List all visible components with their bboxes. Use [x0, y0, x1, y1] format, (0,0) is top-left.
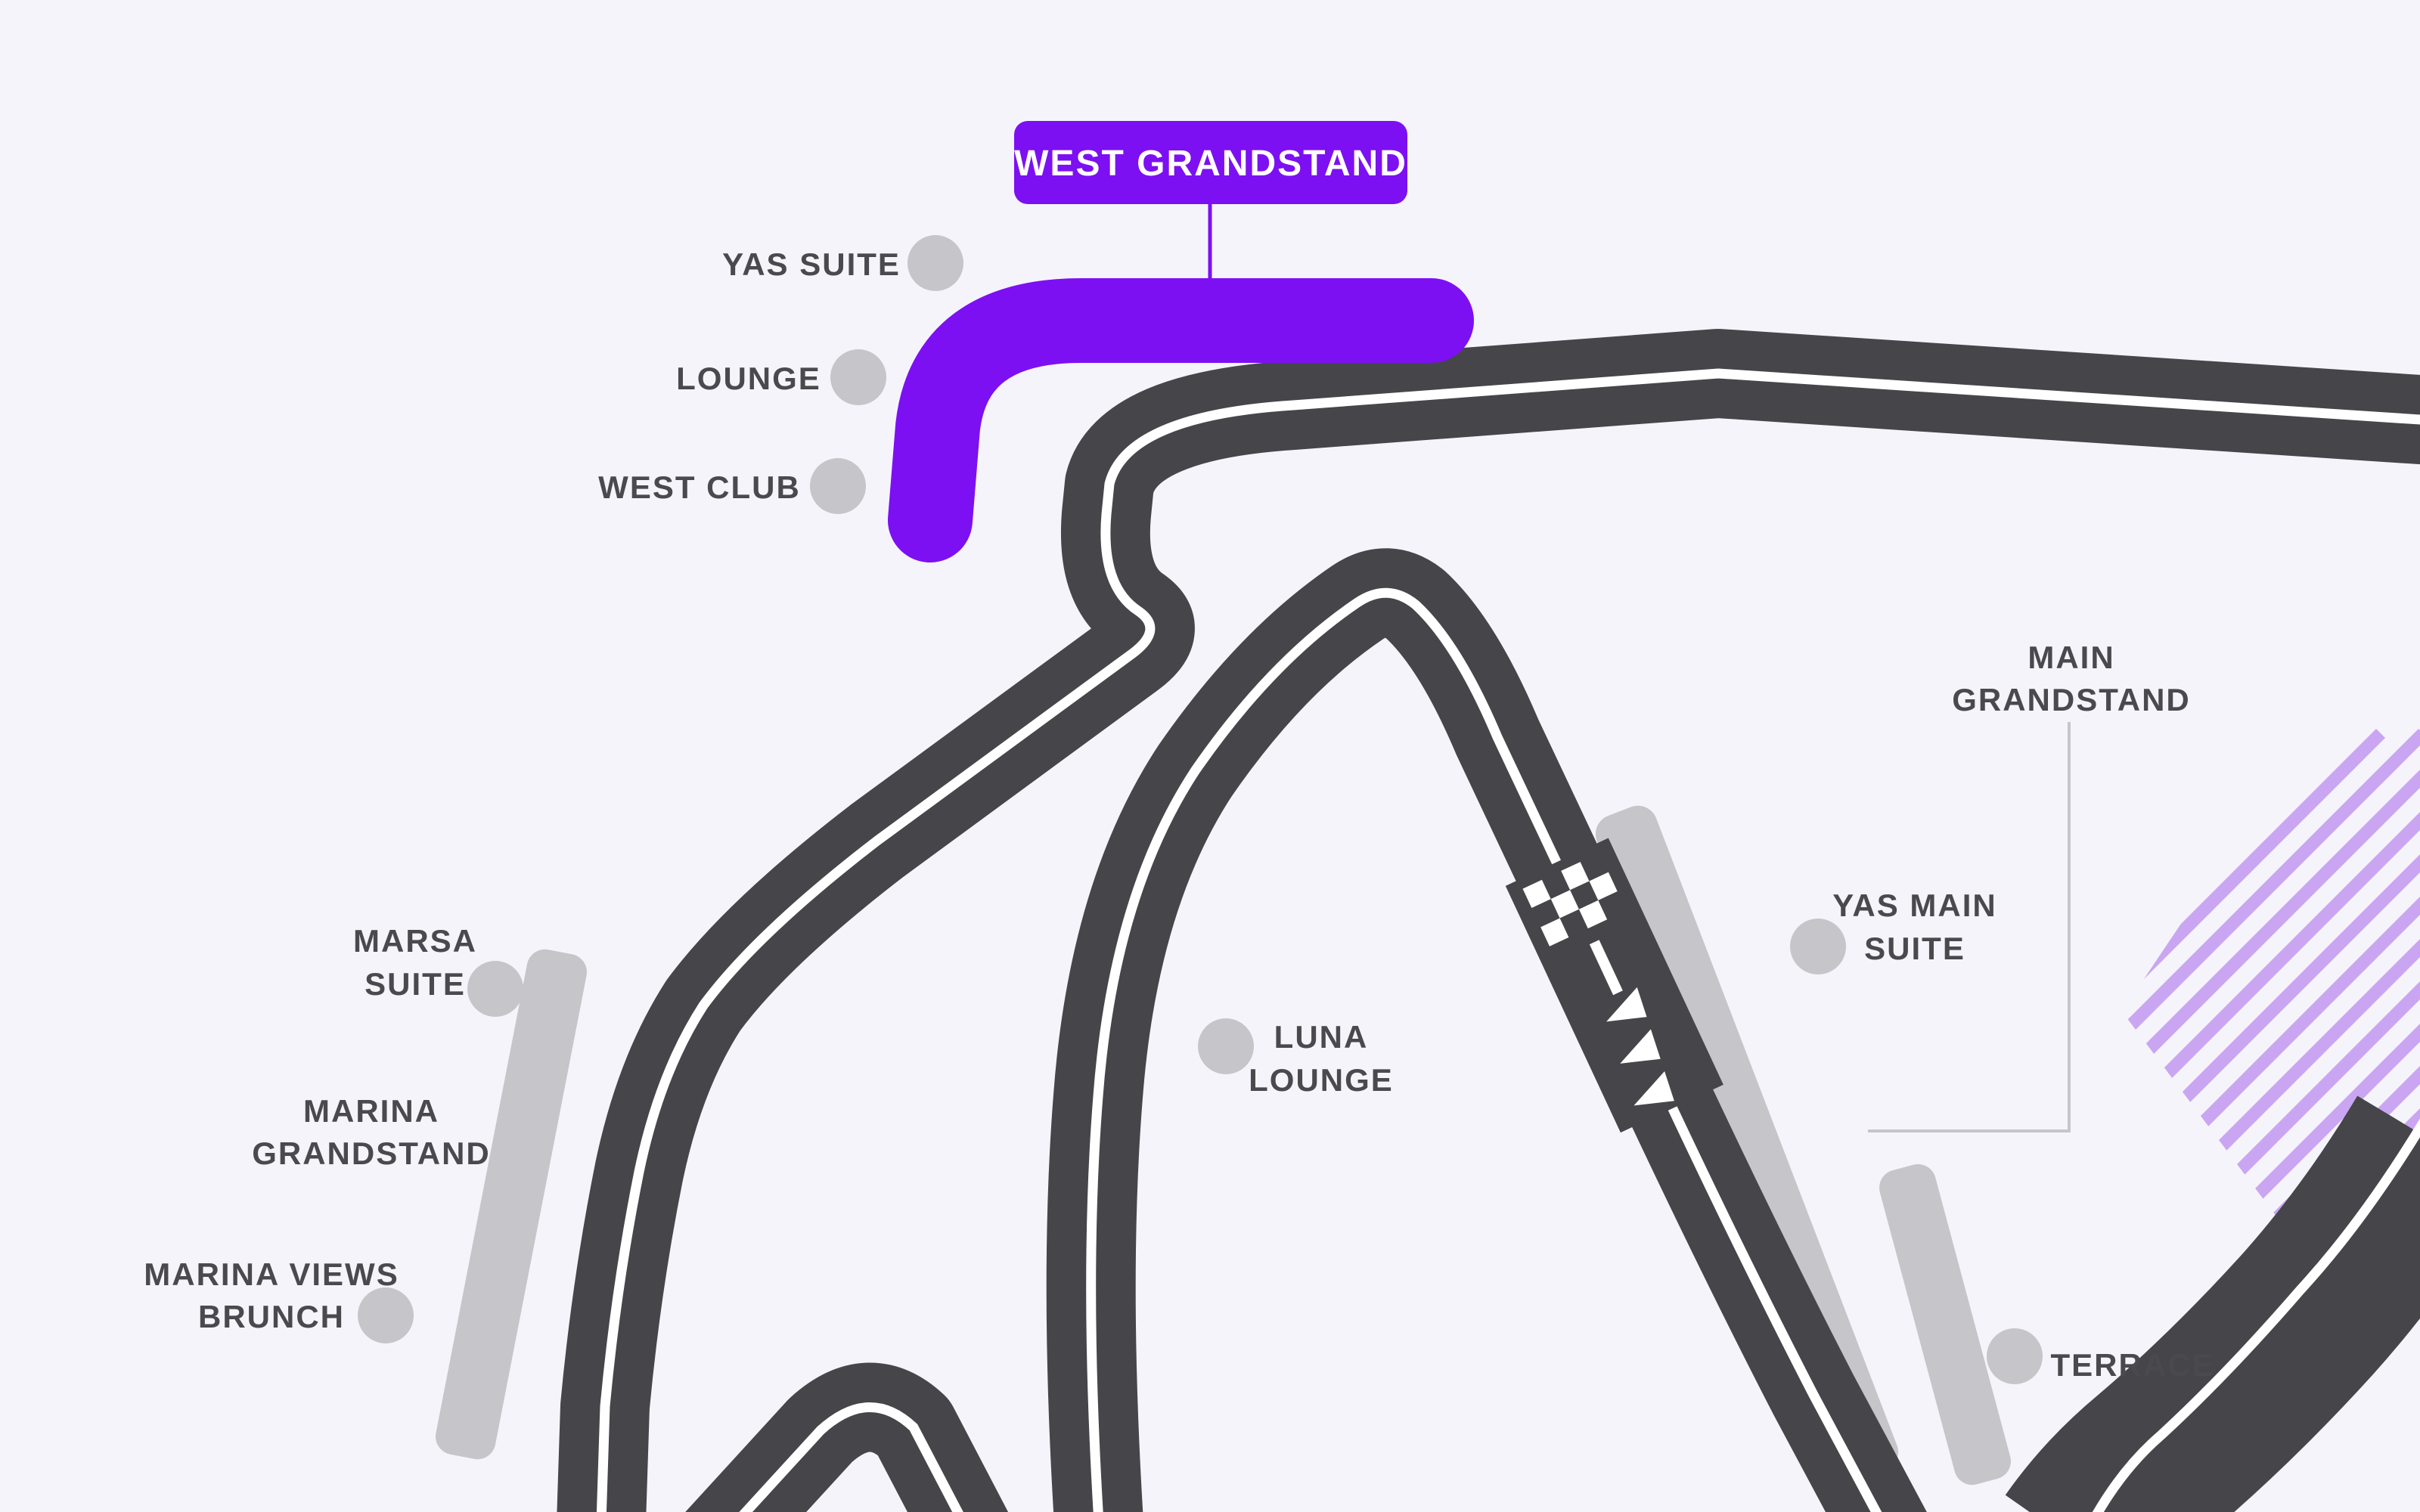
venue-label-terrace[interactable]: TERRACE: [2050, 1347, 2214, 1383]
venue-label-marsa-suite[interactable]: MARSA SUITE: [353, 923, 477, 1002]
venue-dot-marsa-suite[interactable]: [467, 961, 523, 1017]
venue-dot-terrace[interactable]: [1987, 1328, 2043, 1384]
svg-text:MARINA: MARINA: [303, 1093, 439, 1129]
svg-text:SUITE: SUITE: [365, 966, 466, 1002]
svg-text:YAS MAIN: YAS MAIN: [1832, 888, 1997, 923]
venue-label-marina-grandstand[interactable]: MARINA GRANDSTAND: [252, 1093, 491, 1171]
svg-text:GRANDSTAND: GRANDSTAND: [252, 1136, 491, 1171]
terrace-strip[interactable]: [1875, 1160, 2015, 1489]
svg-text:LOUNGE: LOUNGE: [1249, 1062, 1394, 1098]
venue-label-luna-lounge[interactable]: LUNA LOUNGE: [1249, 1019, 1394, 1098]
main-grandstand-leader-line: [1868, 722, 2069, 1131]
venue-dot-lounge[interactable]: [830, 349, 886, 405]
venue-dot-yas-main-suite[interactable]: [1790, 919, 1846, 974]
venue-label-main-grandstand[interactable]: MAIN GRANDSTAND: [1952, 640, 2191, 717]
svg-text:BRUNCH: BRUNCH: [198, 1299, 345, 1334]
venue-label-yas-main-suite[interactable]: YAS MAIN SUITE: [1832, 888, 1997, 966]
venue-label-west-club[interactable]: WEST CLUB: [598, 469, 801, 505]
svg-text:MARINA VIEWS: MARINA VIEWS: [144, 1256, 399, 1292]
svg-text:LUNA: LUNA: [1274, 1019, 1369, 1055]
venue-label-lounge[interactable]: LOUNGE: [676, 361, 821, 396]
svg-text:MARSA: MARSA: [353, 923, 477, 959]
venue-label-yas-suite[interactable]: YAS SUITE: [722, 246, 901, 282]
svg-text:GRANDSTAND: GRANDSTAND: [1952, 682, 2191, 717]
venue-dot-yas-suite[interactable]: [907, 235, 963, 291]
svg-text:MAIN: MAIN: [2028, 640, 2114, 675]
track-center-lines: [600, 373, 2420, 1512]
circuit-map: WEST GRANDSTAND YAS SUITE LOUNGE WEST CL…: [0, 0, 2420, 1512]
venue-dot-marina-views-brunch[interactable]: [358, 1287, 414, 1343]
svg-text:SUITE: SUITE: [1864, 931, 1965, 966]
venue-dot-west-club[interactable]: [810, 458, 866, 514]
selected-grandstand-label: WEST GRANDSTAND: [1014, 144, 1407, 184]
track: [600, 373, 2420, 1512]
selected-grandstand-callout: WEST GRANDSTAND: [1014, 121, 1407, 291]
track-north-section: [600, 373, 2420, 1512]
venue-dot-luna-lounge[interactable]: [1198, 1018, 1254, 1074]
